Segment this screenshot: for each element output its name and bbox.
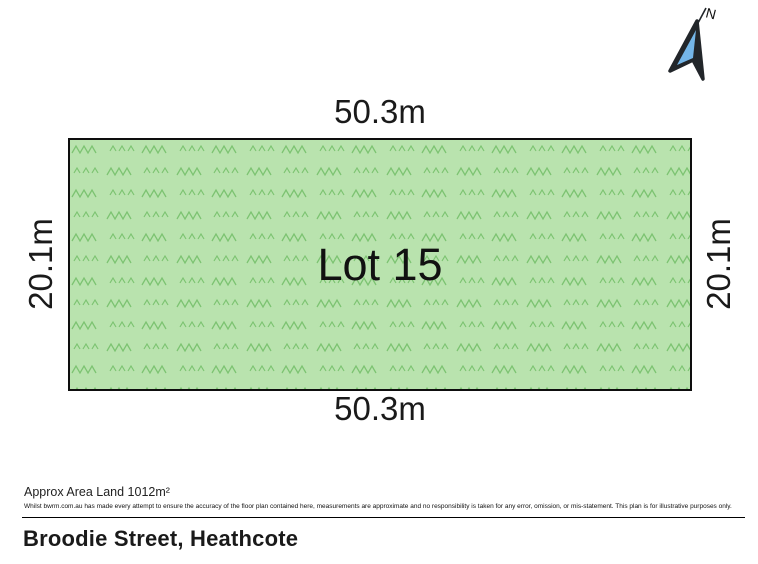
north-compass: N — [663, 3, 725, 81]
property-address: Broodie Street, Heathcote — [23, 526, 298, 552]
north-arrow-icon: N — [663, 3, 725, 81]
approx-area-label: Approx Area Land 1012m² — [24, 485, 170, 499]
dimension-right: 20.1m — [701, 218, 737, 310]
dimension-left: 20.1m — [23, 218, 59, 310]
disclaimer-text: Whilst bwrm.com.au has made every attemp… — [24, 503, 748, 510]
dimension-top: 50.3m — [68, 94, 692, 130]
lot-number-label: Lot 15 — [70, 140, 690, 389]
footer-divider — [22, 517, 745, 518]
compass-north-label: N — [704, 5, 718, 23]
floor-plan-page: N 50.3m Lot 15 20.1m 20.1m 50.3m Approx … — [0, 0, 758, 564]
dimension-bottom: 50.3m — [68, 391, 692, 427]
lot-boundary: Lot 15 — [68, 138, 692, 391]
